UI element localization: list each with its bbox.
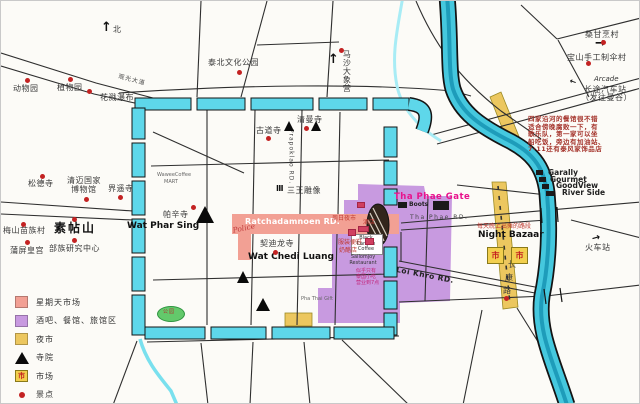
temple-triangle-icon: [196, 206, 214, 223]
poi-dot: [25, 78, 30, 83]
prapoklao-road-label: Prapoklao RD.: [287, 129, 293, 184]
poi-dot: [72, 238, 77, 243]
sightseeing-avenue-label: 观光大道: [117, 74, 146, 87]
tribal-center-label: 部族研究中心: [49, 245, 100, 253]
night-bazaar-label: Night Bazaar: [478, 231, 544, 240]
poi-dot: [25, 240, 30, 245]
legend-label: 市场: [36, 371, 54, 382]
market-symbol: 市: [18, 371, 25, 381]
arcade-label: Arcade: [594, 76, 619, 83]
wat-ku-tao-label: 古道寺: [256, 127, 282, 135]
market-symbol: 市: [492, 250, 500, 261]
hotel-marker: [348, 229, 356, 236]
bosang-label: 宝山手工制伞村: [567, 54, 627, 62]
legend-label: 寺院: [36, 352, 54, 363]
poi-dot: [304, 126, 309, 131]
thai-snack-note-3: 营业到7点: [356, 281, 379, 286]
hmong-village-label: 梅山苗族村: [3, 227, 46, 235]
north-label: 北: [113, 26, 122, 34]
hotel-marker: [357, 202, 365, 208]
poi-dot: [87, 89, 92, 94]
hotel-marker: [365, 238, 374, 245]
legend-row-bar-zone: 酒吧、餐馆、旅馆区: [15, 312, 117, 331]
wawee-coffee-label: WaweeCoffee: [157, 173, 191, 178]
waterfall-label: 花溅瀑布: [100, 94, 134, 102]
poi-dot: [601, 40, 606, 45]
wat-chedi-luang-label-en: Wat Chedi Luang: [248, 253, 334, 262]
tha-phae-road-label: Tha Phae RD.: [410, 215, 468, 221]
market-swatch: 市: [15, 370, 28, 382]
building-marker: [433, 201, 449, 210]
ratchadamnoen-road-label: Ratchadamnoen RD.: [245, 218, 340, 226]
sunday-night-market-label: 周日夜市: [332, 216, 356, 222]
temple-triangle-icon: [284, 121, 294, 131]
legend-label: 景点: [36, 389, 54, 400]
botanical-garden-label: 植物园: [57, 84, 83, 92]
bus-station-arrow-icon: →: [569, 76, 578, 86]
legend-label: 夜市: [36, 334, 54, 345]
market-symbol: 市: [516, 250, 524, 261]
building-marker: [546, 191, 554, 196]
poi-dot: [84, 197, 89, 202]
poi-dot: [504, 296, 509, 301]
poi-dot: [72, 217, 77, 222]
restaurant-riverside-label: River Side: [562, 189, 605, 197]
night-market-swatch: [15, 333, 28, 345]
legend-row-attraction: 景点: [15, 386, 117, 404]
market-marker: 市: [487, 247, 504, 264]
three-kings-label: 三王雕像: [287, 187, 321, 195]
river-note-5: 7-11还有泰风家饰品店: [528, 146, 602, 153]
building-marker: [398, 202, 407, 208]
wat-suan-dok-label: 松德寺: [28, 180, 54, 188]
cultural-park-label: 泰北文化公园: [208, 59, 259, 67]
zoo-label: 动物园: [13, 85, 39, 93]
poi-dot: [586, 61, 591, 66]
legend-label: 酒吧、餐馆、旅馆区: [36, 315, 117, 326]
temple-triangle-icon: [311, 121, 321, 131]
poi-dot: [266, 136, 271, 141]
legend: 星期天市场 酒吧、餐馆、旅馆区 夜市 寺院 市 市场 景点: [15, 293, 117, 404]
attraction-dot-icon: [19, 392, 25, 398]
temple-triangle-icon: [237, 271, 249, 283]
sailomjoy-restaurant-label: Sailomjoy Restaurant: [348, 255, 378, 266]
legend-row-sunday-market: 星期天市场: [15, 293, 117, 312]
boots-label: Boots: [409, 202, 428, 208]
legend-row-night-market: 夜市: [15, 330, 117, 349]
three-kings-monument-icon: Ⅲ: [276, 185, 284, 193]
chiangmai-tourist-map: 动物园植物园花溅瀑布观光大道↑北泰北文化公园马沙大象营↑桑甘烹村→宝山手工制伞村…: [0, 0, 640, 404]
wat-chedi-luang-label-zh: 契迪龙寺: [260, 240, 294, 248]
train-station-label: 火车站: [585, 244, 611, 252]
park-label: 公园: [163, 310, 175, 315]
poi-dot: [40, 174, 45, 179]
legend-label: 星期天市场: [36, 297, 81, 308]
market-marker: 市: [511, 247, 528, 264]
national-museum-label-2: 博物馆: [71, 186, 97, 194]
police-label: Police: [232, 222, 256, 234]
poi-dot: [339, 48, 344, 53]
poi-dot: [237, 70, 242, 75]
doi-suthep-label: 素帖山: [54, 222, 96, 235]
bus-station-note: （发往曼谷）: [581, 94, 632, 102]
bhubing-palace-label: 蒲屏皇宫: [10, 247, 44, 255]
legend-row-temple: 寺院: [15, 349, 117, 368]
loi-khro-road-label: Loi Khro RD.: [395, 266, 454, 285]
pha-thai-gift-label: Pha Thai Gift: [301, 297, 333, 302]
elephant-camp-arrow-icon: ↑: [328, 53, 339, 67]
north-arrow-icon: ↑: [101, 21, 112, 35]
river-note-1: 四家沿河的餐馆很不错: [528, 116, 598, 123]
temple-triangle-icon: [256, 298, 270, 311]
temple-triangle-icon: [15, 352, 29, 364]
wawee-mart-label: MART: [164, 180, 178, 185]
bar-zone-swatch: [15, 315, 28, 327]
legend-row-market: 市 市场: [15, 367, 117, 386]
poi-dot: [21, 222, 26, 227]
chang-klan-char-3: 路: [503, 287, 512, 295]
building-marker: [536, 170, 543, 175]
chang-klan-char-2: 康: [505, 274, 514, 282]
elephant-camp-label: 马沙大象营: [342, 50, 350, 93]
building-marker: [542, 184, 549, 189]
poi-dot: [68, 77, 73, 82]
wat-jed-yod-label: 界遥寺: [108, 185, 134, 193]
sunday-market-swatch: [15, 296, 28, 308]
poi-dot: [273, 250, 278, 255]
river-note-3: 歌乐队，第一家可以坐: [528, 131, 598, 138]
poi-dot: [118, 195, 123, 200]
wat-phra-singh-label-zh: 帕辛寺: [163, 211, 189, 219]
wat-phra-singh-label-en: Wat Phar Sing: [127, 222, 199, 231]
hotel-marker: [358, 226, 369, 232]
building-marker: [539, 177, 546, 182]
